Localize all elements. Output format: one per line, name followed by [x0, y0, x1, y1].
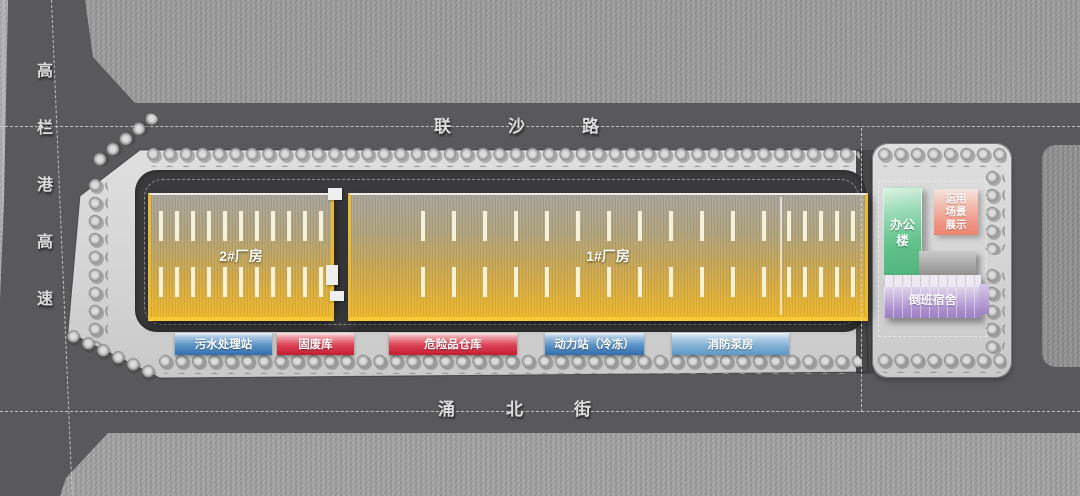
- scene-display-line2: 场景: [946, 206, 967, 219]
- office-label-line2: 楼: [896, 233, 909, 249]
- dormitory-building: 倒班宿舍: [884, 275, 981, 318]
- factory2-label: 2#厂房: [219, 246, 263, 266]
- factory1-east-skylight-row-top: [787, 211, 857, 241]
- annex-tree-column-east-a: [985, 170, 1005, 255]
- facility-hazardous-warehouse: 危险品仓库: [389, 333, 517, 355]
- facility-fire-pump-house: 消防泵房: [672, 333, 789, 355]
- terrain-south-block: [0, 433, 1080, 496]
- factory-connector-middle: [326, 265, 338, 285]
- factory1-east-skylight-row-bottom: [787, 267, 857, 297]
- factory-building-2: 2#厂房: [148, 193, 334, 321]
- facility-power-station: 动力站（冷冻）: [545, 333, 644, 355]
- office-label-line1: 办公: [890, 217, 915, 233]
- factory1-label: 1#厂房: [586, 246, 630, 266]
- tree-column-west: [88, 178, 108, 346]
- annex-tree-row-south: [877, 353, 1007, 373]
- facility-sewage-treatment: 污水处理站: [175, 333, 272, 355]
- annex-tree-row-north: [877, 147, 1007, 167]
- terrain-north-block: [0, 0, 1080, 103]
- dormitory-label: 倒班宿舍: [884, 291, 981, 308]
- factory1-skylight-row-bottom: [421, 267, 777, 297]
- factory2-skylight-row-top: [159, 211, 323, 241]
- scene-display-building: 运用 场景 展示: [934, 189, 978, 235]
- site-plan-canvas: 高栏港高速 联沙路 涌北街 2#厂房 1#厂房 污水处理站 固废库: [0, 0, 1080, 496]
- factory1-section-divider: [780, 197, 782, 315]
- scene-display-line3: 展示: [946, 219, 967, 232]
- factory2-skylight-row-bottom: [159, 267, 323, 297]
- tree-row-north: [146, 147, 860, 167]
- parcel-divider-dashed: [861, 128, 862, 412]
- facility-solid-waste: 固废库: [277, 333, 354, 355]
- dormitory-wing: [979, 284, 989, 314]
- factory-connector-south: [330, 291, 344, 301]
- factory1-skylight-row-top: [421, 211, 777, 241]
- terrain-west-sliver: [0, 0, 10, 300]
- north-road-label: 联沙路: [434, 112, 656, 137]
- terrain-east-block: [1042, 145, 1080, 367]
- dormitory-roof: [884, 275, 981, 287]
- scene-display-line1: 运用: [946, 193, 967, 206]
- south-road-label: 涌北街: [438, 395, 642, 420]
- annex-utility-building: [919, 251, 976, 278]
- factory-connector-north: [328, 188, 342, 200]
- office-building: 办公 楼: [883, 187, 922, 279]
- tree-row-south: [158, 354, 862, 374]
- factory-building-1: 1#厂房: [348, 193, 868, 321]
- expressway-road-label: 高栏港高速: [30, 62, 54, 347]
- expressway-centerline: [51, 0, 73, 496]
